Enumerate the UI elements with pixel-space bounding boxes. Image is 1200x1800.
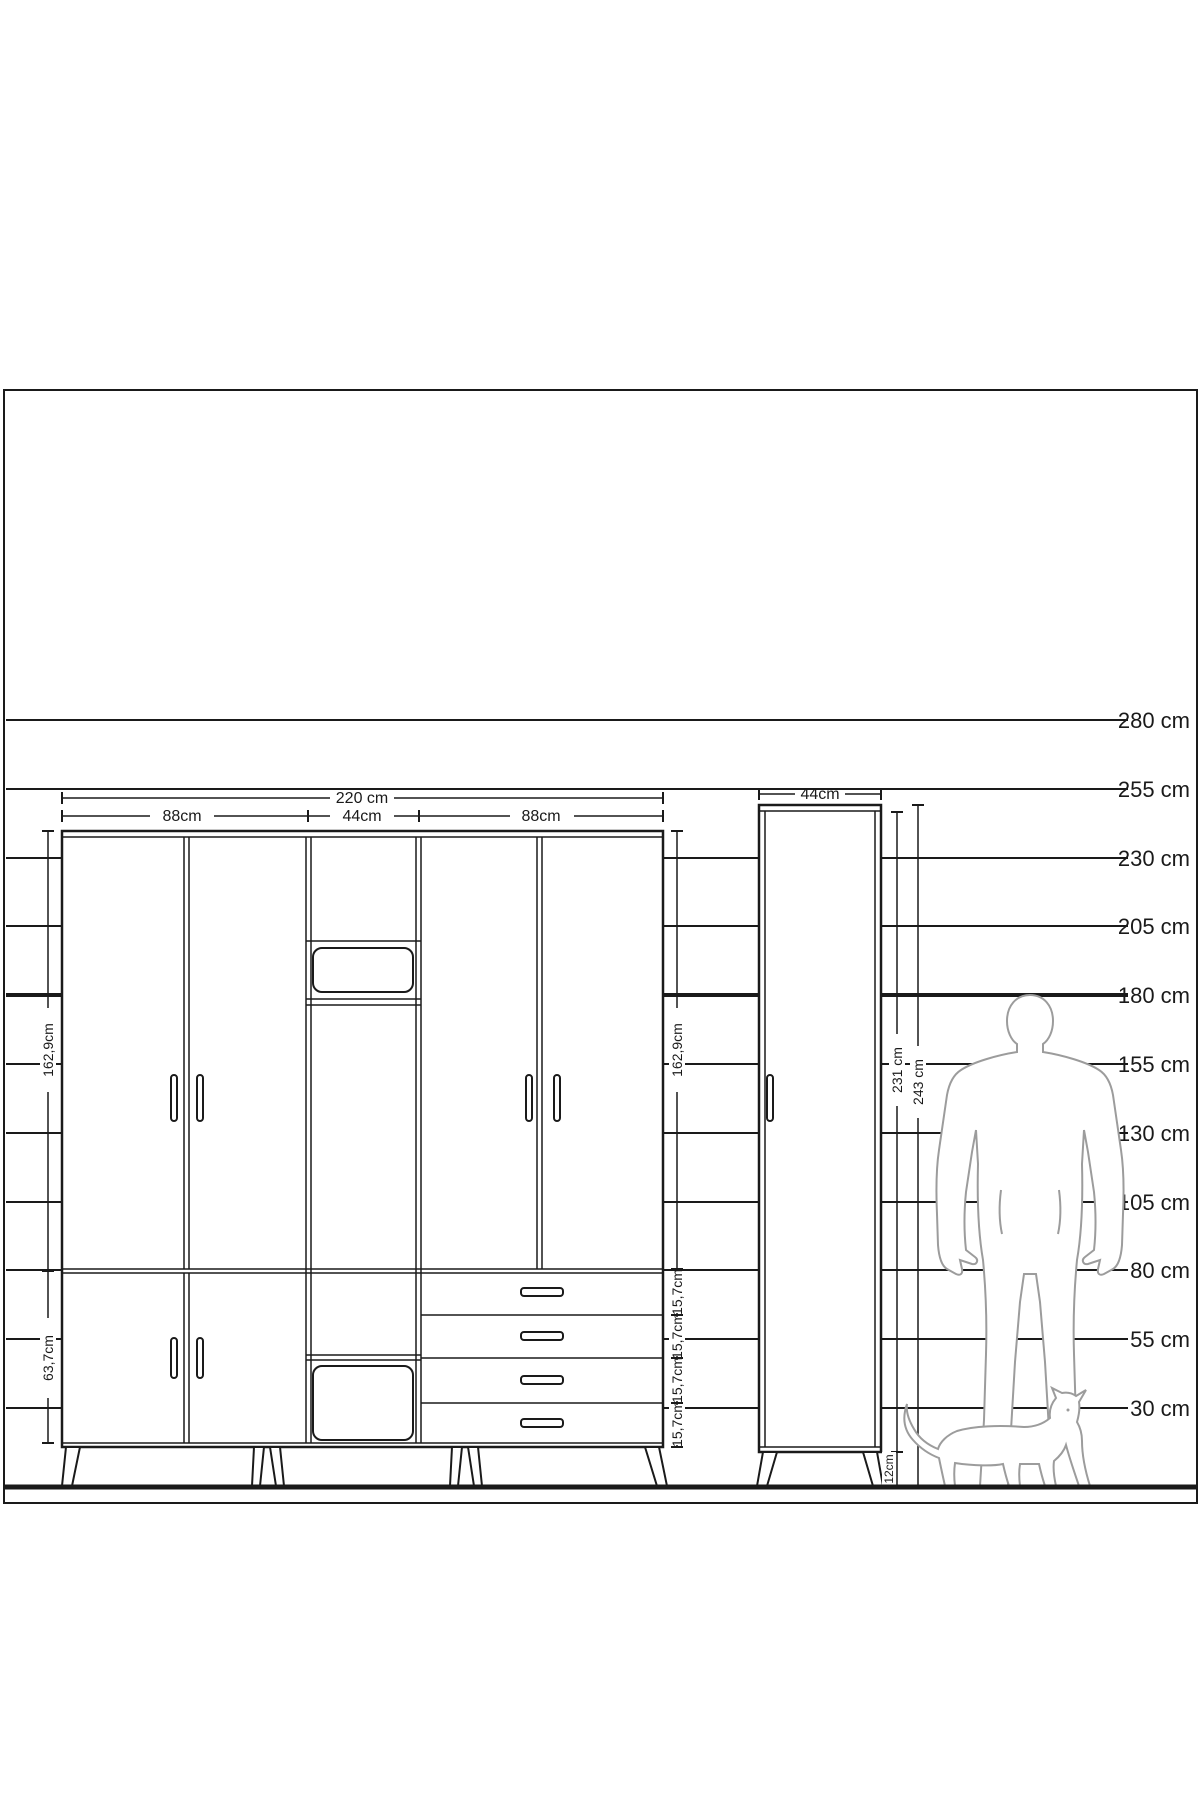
door-handle <box>197 1075 203 1121</box>
height-label-55cm: 55 cm <box>1130 1327 1190 1352</box>
door-handle <box>197 1338 203 1378</box>
dim-label-left-width: 88cm <box>162 808 201 825</box>
height-label-155cm: 155 cm <box>1118 1052 1190 1077</box>
dim-label-cabinet-total-height: 243 cm <box>910 1059 926 1105</box>
door-handle <box>767 1075 773 1121</box>
dim-label-total-width: 220 cm <box>336 790 388 807</box>
wardrobe <box>62 831 667 1486</box>
door-handle <box>171 1338 177 1378</box>
height-label-80cm: 80 cm <box>1130 1258 1190 1283</box>
door-handle <box>526 1075 532 1121</box>
dim-label-drawer-1: 15,7cm <box>669 1269 685 1315</box>
dim-label-drawer-4: 15,7cm <box>669 1401 685 1447</box>
height-label-30cm: 30 cm <box>1130 1396 1190 1421</box>
dim-label-cabinet-width: 44cm <box>800 786 839 803</box>
wardrobe-middle-lower-drawer <box>313 1366 413 1440</box>
dim-label-middle-width: 44cm <box>342 808 381 825</box>
dim-label-right-width: 88cm <box>521 808 560 825</box>
dim-label-cabinet-legs: 12cm <box>882 1454 896 1483</box>
height-label-105cm: 105 cm <box>1118 1190 1190 1215</box>
dim-label-drawer-2: 15,7cm <box>669 1313 685 1359</box>
door-handle <box>554 1075 560 1121</box>
height-label-205cm: 205 cm <box>1118 914 1190 939</box>
height-label-230cm: 230 cm <box>1118 846 1190 871</box>
height-label-280cm: 280 cm <box>1118 708 1190 733</box>
wardrobe-middle-upper-drawer <box>313 948 413 992</box>
height-label-130cm: 130 cm <box>1118 1121 1190 1146</box>
door-handle <box>171 1075 177 1121</box>
drawer-handle-4 <box>521 1419 563 1427</box>
dim-label-upper-doors-right: 162,9cm <box>669 1023 685 1077</box>
drawer-handle-3 <box>521 1376 563 1384</box>
side-cabinet <box>757 805 883 1486</box>
furniture-dimension-drawing: 280 cm 255 cm 230 cm 205 cm 180 cm 155 c… <box>0 0 1200 1800</box>
drawer-handle-1 <box>521 1288 563 1296</box>
cat-eye <box>1067 1409 1070 1412</box>
dim-label-cabinet-body-height: 231 cm <box>889 1047 905 1093</box>
height-label-180cm: 180 cm <box>1118 983 1190 1008</box>
dim-label-upper-doors-left: 162,9cm <box>40 1023 56 1077</box>
dim-label-drawer-3: 15,7cm <box>669 1357 685 1403</box>
dim-label-lower-doors: 63,7cm <box>40 1335 56 1381</box>
height-label-255cm: 255 cm <box>1118 777 1190 802</box>
side-cabinet-body <box>759 805 881 1452</box>
drawer-handle-2 <box>521 1332 563 1340</box>
